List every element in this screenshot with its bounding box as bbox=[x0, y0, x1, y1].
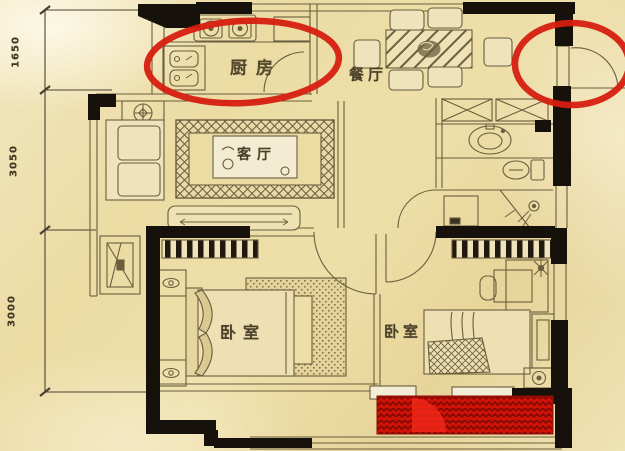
dimension-label: 3000 bbox=[7, 295, 18, 327]
desk-icon bbox=[480, 260, 548, 312]
shower-icon bbox=[444, 190, 539, 228]
ac-unit-icon bbox=[100, 236, 140, 294]
balcony-highlight bbox=[377, 396, 553, 434]
room-label-kitchen: 厨房 bbox=[230, 54, 282, 79]
plant-icon bbox=[534, 259, 548, 277]
kitchen-sink-icon bbox=[163, 46, 205, 90]
toilet-icon bbox=[503, 160, 544, 180]
chair bbox=[484, 38, 512, 66]
nightstand-icon bbox=[156, 270, 186, 296]
chair bbox=[428, 8, 462, 28]
bathroom-fixtures bbox=[398, 99, 553, 228]
room-label-dining: 餐厅 bbox=[349, 64, 387, 85]
chair bbox=[428, 67, 462, 87]
bathroom-door-arc bbox=[398, 190, 436, 228]
room-label-bedroom-second: 卧室 bbox=[384, 321, 422, 342]
wardrobe-icon bbox=[452, 240, 554, 258]
room-label-bedroom-main: 卧室 bbox=[220, 319, 266, 343]
sofa-icon bbox=[106, 120, 164, 200]
dimension-line-left bbox=[40, 6, 148, 396]
room-label-living: 客厅 bbox=[237, 144, 277, 164]
wall bbox=[138, 4, 200, 28]
bedroom-second-door-arc bbox=[386, 232, 436, 282]
nightstand-icon bbox=[532, 314, 554, 368]
chair bbox=[390, 10, 424, 30]
dimension-label: 3050 bbox=[9, 145, 20, 177]
living-room-furniture bbox=[100, 101, 334, 294]
dimension-label: 1650 bbox=[11, 36, 22, 68]
floor-plan-drawing bbox=[0, 0, 625, 451]
structural-walls bbox=[88, 2, 575, 448]
bed-second-icon bbox=[424, 310, 530, 374]
wardrobe-icon bbox=[162, 240, 258, 258]
entry-door-arc bbox=[571, 48, 618, 88]
nightstand-icon bbox=[156, 360, 186, 386]
bath-sink-icon bbox=[469, 124, 511, 154]
bedroom-second-furniture bbox=[386, 232, 554, 388]
chair bbox=[389, 70, 423, 90]
floor-plan-image: 厨房 餐厅 客厅 卧室 卧室 1650 3050 3000 bbox=[0, 0, 625, 451]
bedroom-main-furniture bbox=[156, 232, 376, 386]
